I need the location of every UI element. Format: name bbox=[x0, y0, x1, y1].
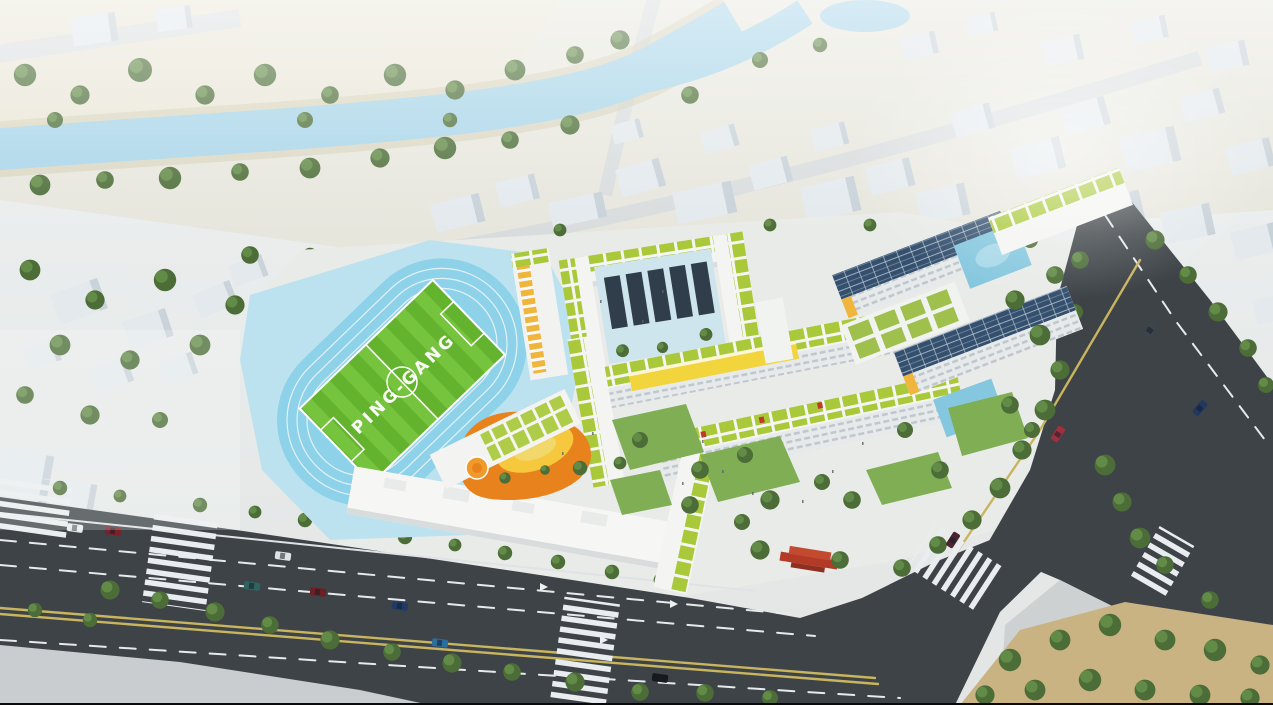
rendering-canvas: PING-GANG bbox=[0, 0, 1273, 705]
haze-left bbox=[0, 330, 240, 530]
aerial-rendering: PING-GANG bbox=[0, 0, 1273, 705]
haze-topright bbox=[850, 0, 1273, 300]
